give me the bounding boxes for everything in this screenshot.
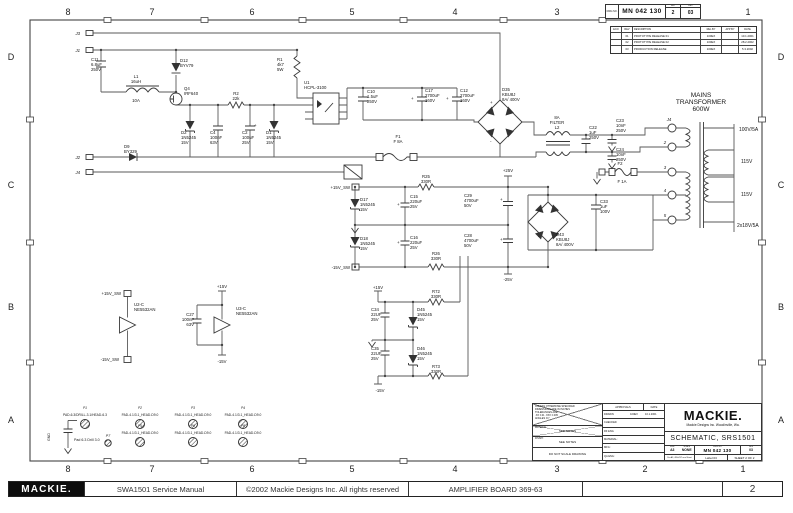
schematic-label: C2100uF25V — [242, 130, 255, 145]
schematic-label: + — [411, 96, 414, 101]
schematic-label: + — [397, 240, 400, 245]
zone-label: 8 — [65, 464, 70, 474]
schematic-wires — [68, 33, 734, 448]
schematic-label: + — [446, 96, 449, 101]
cell: 100EX — [701, 40, 722, 46]
cell: 03 — [622, 46, 633, 53]
zone-label: 4 — [452, 464, 457, 474]
approval-row: DRAWN100EX10.1.2001 — [603, 411, 664, 419]
schematic-label: 3 — [664, 165, 667, 170]
title-block: UNLESS OTHERWISE SPECIFIED DIMENSIONS AR… — [532, 403, 762, 461]
zone-label: 3 — [554, 464, 559, 474]
schematic-label: C101.5uF250V — [367, 89, 378, 104]
approval-row: MFG: — [603, 444, 664, 452]
mackie-logo: MACKIE. — [684, 409, 742, 422]
schematic-label: D171N524515V — [360, 197, 376, 212]
finish-note: FINISH: SEE NOTES — [533, 437, 602, 448]
schematic-label: -25V — [503, 277, 512, 282]
schematic-label: C15220uF25V — [410, 194, 423, 209]
col-rev: REV — [622, 27, 633, 32]
footer-board-title: AMPLIFIER BOARD 369-63 — [409, 482, 583, 496]
dwg-no-label: DWG NO. — [606, 5, 619, 18]
schematic-label: R73330R — [431, 364, 441, 374]
col-eco: ECO — [611, 27, 622, 32]
dwg-no-cell: DWG NO. MN 042 130 — [695, 446, 741, 454]
schematic-label: + — [538, 208, 541, 213]
schematic-label: PAD-4.1/3.1_HEAD-D9.0 — [175, 431, 212, 435]
schematic-label: C122700uF160V — [460, 88, 475, 103]
schematic-label: R25330R — [421, 174, 431, 184]
schematic-label: GND — [47, 433, 51, 441]
schematic-label: R72330R — [431, 289, 441, 299]
zone-label: 2 — [642, 464, 647, 474]
zone-label: B — [8, 302, 14, 312]
revision-row: 03 PRODUCTION RELEASE 100EX 5.3.2002 — [611, 46, 756, 53]
schematic-label: D461N524515V — [417, 346, 433, 361]
cell: 02 — [622, 40, 633, 46]
revision-table: ECO REV DESCRIPTION REL BY APP BY DATE 0… — [610, 26, 757, 54]
schematic-label: U1HCPL-3100 — [304, 80, 327, 90]
company-address: Mackie Designs Inc. Woodinville, Wa. — [687, 423, 740, 427]
schematic-label: + — [397, 202, 400, 207]
schematic-label: P5 — [138, 424, 142, 428]
zone-label: 1 — [740, 464, 745, 474]
title-block-notes: UNLESS OTHERWISE SPECIFIED DIMENSIONS AR… — [533, 404, 603, 460]
material-note: MATERIAL: SEE NOTES — [533, 426, 602, 437]
cell — [722, 46, 739, 53]
zone-label: 1 — [745, 7, 750, 17]
drawing-title: SCHEMATIC, SRS1501 — [665, 432, 761, 446]
drawing-border — [27, 18, 766, 464]
schematic-label: P3 — [191, 406, 195, 410]
schematic-label: C27100nF63V — [182, 312, 195, 327]
schematic-label: C2410nF250V — [616, 147, 626, 162]
schematic-label: PAD-4.1/3.1_HEAD-D9.0 — [225, 413, 262, 417]
company-block: MACKIE. Mackie Designs Inc. Woodinville,… — [665, 404, 761, 432]
schematic-label: D43KBU8J8A/ 400V — [556, 232, 574, 247]
schematic-label: PAD-6.3/DRILL-3.1/HEAD-6.3 — [63, 413, 107, 417]
schematic-label: +25V — [503, 168, 513, 173]
schematic-label: 100V/5A — [739, 127, 759, 133]
cell — [611, 40, 622, 46]
schematic-label: F1F 8A — [393, 134, 402, 144]
rev-cell: REV 03 — [741, 446, 761, 454]
zone-label: B — [778, 302, 784, 312]
schematic-label: D35KBU8J8A/ 400V — [502, 87, 520, 102]
footer-manual-title: SWA1501 Service Manual — [85, 482, 237, 496]
schematic-label: -15V_SW — [332, 265, 351, 270]
schematic-label: +15V — [217, 284, 227, 289]
zone-label: 5 — [349, 464, 354, 474]
approval-row: MATERIAL: — [603, 436, 664, 444]
cell: 5.3.2002 — [739, 46, 756, 53]
schematic-label: -15V — [217, 359, 226, 364]
schematic-label: P2 — [138, 406, 142, 410]
zone-label: C — [8, 180, 15, 190]
schematic-label: 115V — [741, 192, 753, 198]
schematic-label: Q4IRF640 — [184, 86, 199, 96]
schematic-label: D181N524515V — [360, 236, 376, 251]
dwg-number-strip: DWG NO. MN 042 130 SHT 2 REV 03 — [605, 4, 701, 19]
schematic-label: PAD-4.1/3.1_HEAD-D9.0 — [122, 413, 159, 417]
footer-page-number: 2 — [723, 482, 782, 496]
schematic-label: + — [254, 123, 257, 128]
zone-label: D — [778, 52, 785, 62]
schematic-label: 115V — [741, 159, 753, 165]
col-rel-by: REL BY — [701, 27, 722, 32]
schematic-label: +15V — [373, 285, 383, 290]
schematic-label: C221uF250V — [589, 125, 599, 140]
footer-bar: MACKIE. SWA1501 Service Manual ©2002 Mac… — [8, 481, 783, 497]
schematic-label: D9BY329 — [124, 144, 138, 154]
schematic-label: C172700uF160V — [425, 88, 440, 103]
schematic-label: C4100nF63V — [210, 130, 223, 145]
schematic-label: Pad 6.3 Drill 3.0 — [74, 438, 100, 442]
footer-copyright: ©2002 Mackie Designs Inc. All rights res… — [237, 482, 409, 496]
schematic-label: + — [500, 237, 503, 242]
zone-label: 6 — [249, 464, 254, 474]
schematic-label: D451N524515V — [417, 307, 433, 322]
col-app-by: APP BY — [722, 27, 739, 32]
schematic-label: P1 — [83, 406, 87, 410]
schematic-label: 5 — [664, 213, 667, 218]
schematic-label: D12BYV79 — [180, 58, 194, 68]
schematic-label: P4 — [241, 406, 245, 410]
junction-dots — [100, 49, 613, 377]
size-scale-cell: SIZEA3 SCALENONE — [665, 446, 695, 454]
cell: PROTOTYPE RELEASE 02 — [633, 40, 701, 46]
zone-label: 6 — [249, 7, 254, 17]
schematic-label: 2 — [663, 140, 667, 145]
schematic-label: -15V_SW — [101, 357, 120, 362]
col-date: DATE — [739, 27, 756, 32]
schematic-label: +15V_SW — [331, 185, 351, 190]
schematic-label: F 1A — [617, 179, 626, 184]
label-number: Label 03 — [695, 455, 728, 460]
cell — [722, 33, 739, 39]
schematic-label: C294700uF50V — [464, 193, 479, 208]
schematic-label: 8AFILTERL2 — [550, 115, 564, 130]
schematic-label: PAD-4.1/3.1_HEAD-D9.0 — [225, 431, 262, 435]
zone-label: D — [8, 52, 15, 62]
material-value: SEE NOTES — [535, 429, 600, 433]
col-description: DESCRIPTION — [633, 27, 701, 32]
approval-row: CHECKED — [603, 419, 664, 427]
title-block-main: MACKIE. Mackie Designs Inc. Woodinville,… — [665, 404, 761, 460]
zone-label: 7 — [149, 464, 154, 474]
zone-label: 7 — [149, 7, 154, 17]
zone-label: 8 — [65, 7, 70, 17]
cell — [611, 33, 622, 39]
cell — [611, 46, 622, 53]
schematic-symbols — [64, 31, 709, 454]
approvals-header: APPROVALS — [603, 404, 644, 410]
schematic-label: J3 — [74, 31, 80, 36]
schematic-label: + — [500, 197, 503, 202]
schematic-label: PAD-4.1/3.1_HEAD-D9.0 — [122, 431, 159, 435]
schematic-label: C3422UF25V — [371, 307, 382, 322]
schematic-label: 10A — [132, 98, 140, 103]
zone-label: 4 — [452, 7, 457, 17]
schematic-label: R222k — [233, 91, 241, 101]
schematic-label: + — [490, 100, 493, 105]
schematic-label: C331uF100V — [600, 199, 610, 214]
schematic-label: R14k75W — [277, 57, 285, 72]
cell: PROTOTYPE RELEASE 01 — [633, 33, 701, 39]
schematic-label: F2 — [617, 161, 623, 166]
cell: 100EX — [701, 46, 722, 53]
schematic-label: J1 — [74, 48, 80, 53]
dwg-number: MN 042 130 — [619, 5, 666, 18]
zone-label: 5 — [349, 7, 354, 17]
rev-number: 03 — [688, 8, 694, 18]
schematic-label: C2310nF250V — [616, 118, 626, 133]
schematic-label: P6 — [191, 424, 195, 428]
zone-label: A — [8, 415, 14, 425]
schematic-label: PAD-4.1/3.1_HEAD-D9.0 — [175, 413, 212, 417]
schematic-sheet: J3J1J2J4C116.8uF250VL116uH10AD12BYV79D9B… — [0, 0, 793, 513]
cell: PRODUCTION RELEASE — [633, 46, 701, 53]
schematic-label: J4 — [74, 170, 80, 175]
schematic-label: J4 — [666, 117, 672, 122]
finish-value: SEE NOTES — [535, 440, 600, 444]
cell: 100EX — [701, 33, 722, 39]
zone-label: 3 — [554, 7, 559, 17]
footer-mackie-logo: MACKIE. — [9, 482, 85, 496]
approval-row: RF ENG — [603, 428, 664, 436]
title-block-approvals: APPROVALS DATE DRAWN100EX10.1.2001 CHECK… — [603, 404, 665, 460]
date-header: DATE — [644, 404, 664, 410]
approval-row: QA ENG: — [603, 453, 664, 460]
cell: 10.1.2001 — [739, 33, 756, 39]
schematic-label: - — [490, 139, 492, 144]
cell: 01 — [622, 33, 633, 39]
zone-label: C — [778, 180, 785, 190]
schematic-label: -15V — [375, 388, 384, 393]
schematic-label: P8 — [241, 424, 245, 428]
footer-blank-cell — [583, 482, 723, 496]
schematic-label: C284700uF50V — [464, 233, 479, 248]
zone-label: A — [778, 415, 784, 425]
schematic-label: L116uH — [131, 74, 141, 84]
cell — [722, 40, 739, 46]
sheet-size-note: Din A3, 420x297 mm Sheet — [665, 455, 695, 460]
schematic-label: P7 — [106, 434, 111, 438]
sheet-number: 2 — [672, 8, 675, 18]
schematic-labels: J3J1J2J4C116.8uF250VL116uH10AD12BYV79D9B… — [47, 31, 759, 442]
schematic-label: C3522UF25V — [371, 346, 382, 361]
schematic-label: +15V_SW — [102, 291, 122, 296]
sheet-count: SHEET 2 OF 2 — [728, 455, 761, 460]
no-scale-note: DO NOT SCALE DRAWING — [533, 448, 602, 460]
schematic-label: R26330R — [431, 251, 441, 261]
tolerance-note: UNLESS OTHERWISE SPECIFIED DIMENSIONS AR… — [533, 404, 602, 426]
schematic-label: J2 — [74, 155, 80, 160]
schematic-label: U2-CNE5532AN — [134, 302, 156, 312]
schematic-label: 2x18V/5A — [737, 223, 759, 229]
schematic-label: U3-CNE5532AN — [236, 306, 258, 316]
schematic-label: 4 — [664, 188, 667, 193]
cell: 28.2.2002 — [739, 40, 756, 46]
schematic-label: MAINSTRANSFORMER600W — [676, 92, 727, 113]
schematic-label: C16220uF25V — [410, 235, 423, 250]
